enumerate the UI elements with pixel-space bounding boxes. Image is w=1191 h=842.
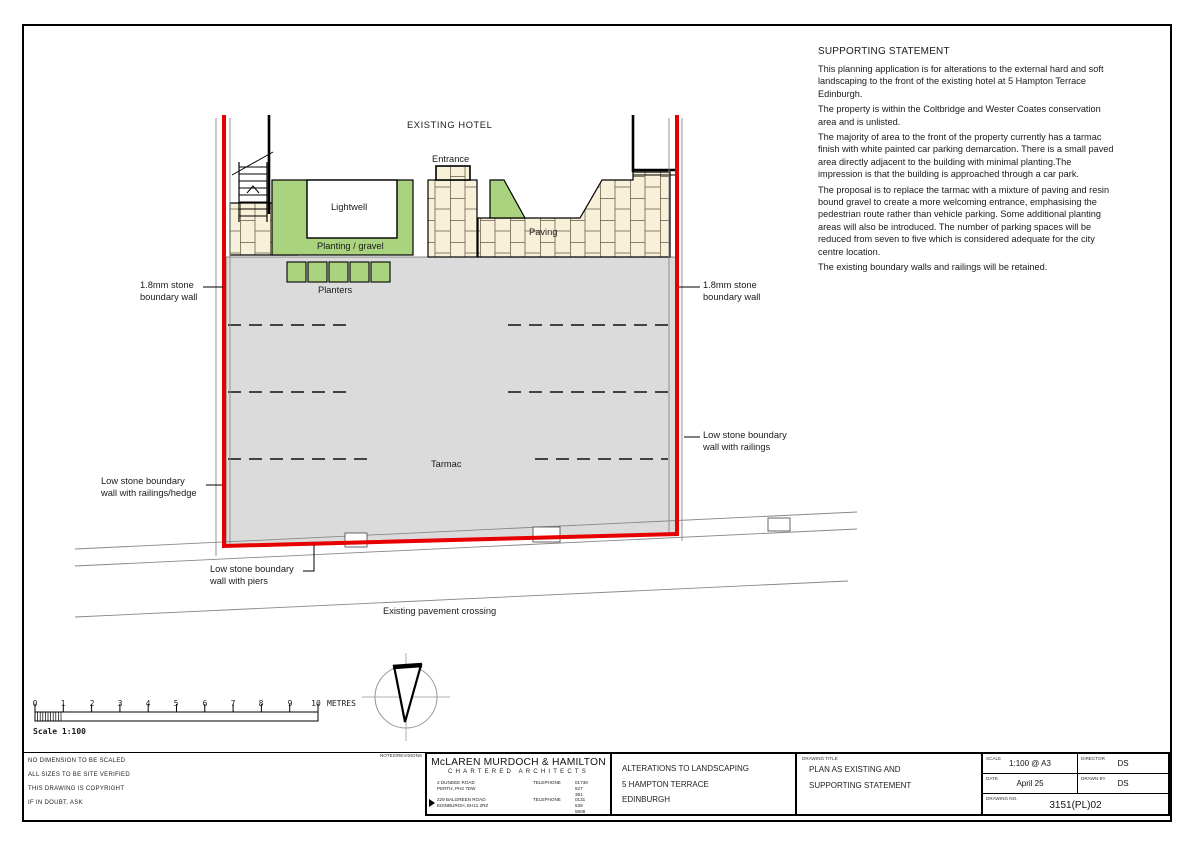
railings-hedge-annotation: Low stone boundary wall with railings/he… [101,476,197,500]
architect-name: McLAREN MURDOCH & HAMILTON [427,757,610,768]
scale-unit-label: METRES [327,699,373,708]
paving-label: Paving [529,227,557,237]
statement-paragraph: The property is within the Coltbridge an… [818,103,1114,128]
architect-box: McLAREN MURDOCH & HAMILTON CHARTERED ARC… [425,752,612,816]
note-line: IF IN DOUBT, ASK [28,800,130,806]
drawing-title-box: DRAWING TITLE PLAN AS EXISTING AND SUPPO… [795,752,983,816]
scale-number: 3 [112,699,128,708]
supporting-statement: SUPPORTING STATEMENT This planning appli… [818,46,1114,277]
pavement-crossing-annotation: Existing pavement crossing [383,606,496,618]
project-box: ALTERATIONS TO LANDSCAPING 5 HAMPTON TER… [610,752,797,816]
drawing-info-grid: SCALE 1:100 @ A3 DIRECTOR DS DATE April … [981,752,1170,816]
statement-paragraph: The existing boundary walls and railings… [818,261,1114,273]
project-line: 5 HAMPTON TERRACE [622,780,795,789]
drawing-title-caption: DRAWING TITLE [802,756,981,761]
scale-caption: Scale 1:100 [33,727,86,736]
note-line: NO DIMENSION TO BE SCALED [28,758,130,764]
scale-number: 2 [84,699,100,708]
scale-number: 1 [55,699,71,708]
scale-cell: SCALE 1:100 @ A3 [983,754,1078,773]
wall-right-annotation: 1.8mm stone boundary wall [703,280,760,304]
tarmac-label: Tarmac [431,459,461,469]
office-row: 229 BALGREEN ROAD EDINBURGH, EH11 2RZ TE… [437,797,488,809]
office-row: 2 DUNDEE ROAD PERTH, PH2 7DW TELEPHONE 0… [437,780,475,792]
sheet-notes: NO DIMENSION TO BE SCALED ALL SIZES TO B… [28,758,130,814]
scale-number: 8 [253,699,269,708]
statement-title: SUPPORTING STATEMENT [818,46,1114,57]
scale-number: 6 [197,699,213,708]
north-arrow-icon [362,653,450,741]
director-cell: DIRECTOR DS [1078,754,1168,773]
scale-number: 0 [27,699,43,708]
statement-paragraph: This planning application is for alterat… [818,63,1114,100]
tarmac-area [226,257,677,547]
scale-number: 9 [282,699,298,708]
lightwell-label: Lightwell [331,202,367,212]
drawn-by-cell: DRAWN BY DS [1078,774,1168,793]
scale-number: 4 [140,699,156,708]
architect-subtitle: CHARTERED ARCHITECTS [427,769,610,775]
drawing-title-line: PLAN AS EXISTING AND [809,765,981,774]
planters-label: Planters [318,285,352,295]
notes-revisions-label: NOTES/REVISIONS [330,753,422,758]
railings-right-annotation: Low stone boundary wall with railings [703,430,787,454]
statement-paragraph: The proposal is to replace the tarmac wi… [818,184,1114,258]
piers-annotation: Low stone boundary wall with piers [210,564,294,588]
planter-boxes [287,262,390,282]
existing-hotel-label: EXISTING HOTEL [407,120,492,130]
wall-left-annotation: 1.8mm stone boundary wall [140,280,197,304]
note-line: THIS DRAWING IS COPYRIGHT [28,786,130,792]
note-line: ALL SIZES TO BE SITE VERIFIED [28,772,130,778]
statement-paragraph: The majority of area to the front of the… [818,131,1114,181]
date-cell: DATE April 25 [983,774,1078,793]
planting-gravel-label: Planting / gravel [317,241,384,251]
drawing-no-cell: DRAWING NO. 3151(PL)02 [983,794,1168,816]
office-marker-icon [429,799,435,807]
entrance-label: Entrance [432,154,469,164]
scale-number: 7 [225,699,241,708]
project-line: EDINBURGH [622,795,795,804]
drawing-title-line: SUPPORTING STATEMENT [809,781,981,790]
project-line: ALTERATIONS TO LANDSCAPING [622,764,795,773]
drawing-sheet: EXISTING HOTEL Entrance Lightwell Planti… [0,0,1191,842]
scale-number: 5 [168,699,184,708]
scale-number: 10 [308,699,324,708]
